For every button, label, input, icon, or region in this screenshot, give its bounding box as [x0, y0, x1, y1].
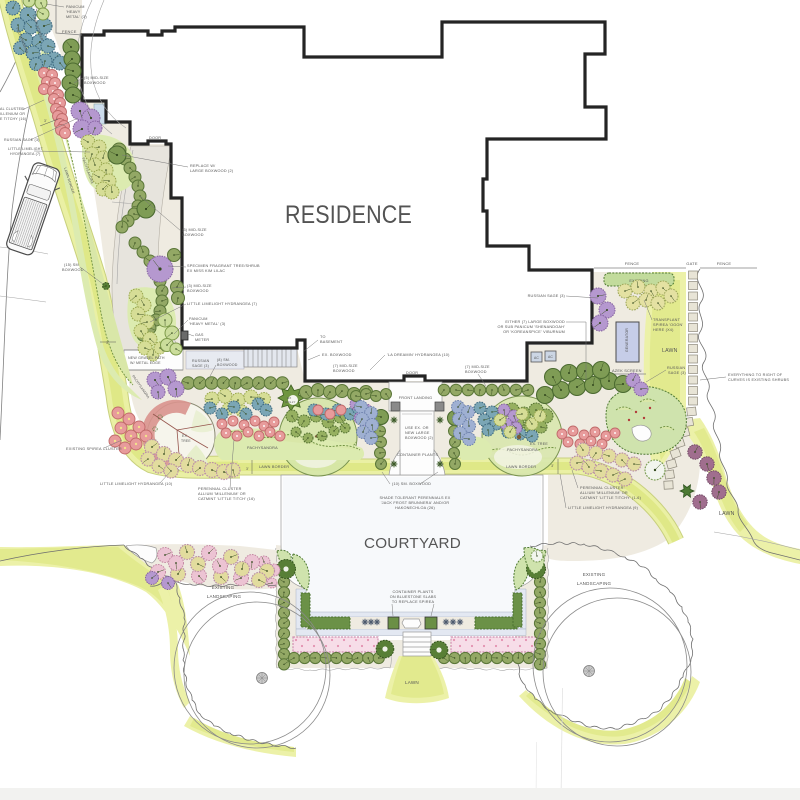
svg-text:LITTLE LIMELIGHT HYDRANGEA (7): LITTLE LIMELIGHT HYDRANGEA (7): [187, 302, 258, 306]
svg-text:BOXWOOD: BOXWOOD: [62, 268, 84, 272]
svg-text:ILLENIUM OR: ILLENIUM OR: [0, 112, 25, 116]
svg-text:LANDSCAPING: LANDSCAPING: [207, 594, 242, 599]
svg-text:'HEAVY METAL' (3): 'HEAVY METAL' (3): [189, 322, 226, 326]
svg-text:'HEAVY: 'HEAVY: [66, 10, 81, 14]
svg-text:(3) MID-SIZE: (3) MID-SIZE: [187, 284, 212, 288]
svg-text:EVERYTHING TO RIGHT OF: EVERYTHING TO RIGHT OF: [728, 373, 783, 377]
svg-text:EX MISS KIM LILAC: EX MISS KIM LILAC: [187, 269, 225, 273]
svg-text:CONTAINER PLANTS: CONTAINER PLANTS: [392, 590, 433, 594]
svg-text:TO REPLACE SPIREA: TO REPLACE SPIREA: [392, 600, 435, 604]
svg-text:AC: AC: [548, 355, 553, 359]
svg-text:(3) MID-SIZE: (3) MID-SIZE: [182, 228, 207, 232]
svg-text:PERENNIAL CLUSTER:: PERENNIAL CLUSTER:: [580, 486, 625, 490]
svg-text:PACHYSANDRA: PACHYSANDRA: [247, 446, 278, 450]
svg-text:RUSSIAN SAGE (3): RUSSIAN SAGE (3): [4, 138, 40, 142]
svg-text:SAGE (3): SAGE (3): [668, 371, 686, 375]
svg-text:OR SUB PANICUM 'SHENANDOAH': OR SUB PANICUM 'SHENANDOAH': [497, 325, 565, 329]
svg-text:ALLIUM 'MILLENIUM' OR: ALLIUM 'MILLENIUM' OR: [580, 491, 628, 495]
svg-text:EX. TREE: EX. TREE: [530, 442, 548, 446]
svg-text:RUSSIAN: RUSSIAN: [667, 366, 685, 370]
svg-text:HAKONECHLOA (26): HAKONECHLOA (26): [395, 506, 435, 510]
svg-text:FENCE: FENCE: [62, 29, 77, 34]
svg-text:SPIREA 'OGON': SPIREA 'OGON': [653, 323, 683, 327]
svg-text:EXISTING: EXISTING: [212, 585, 235, 590]
svg-text:DOOR: DOOR: [406, 371, 418, 375]
svg-text:EX: EX: [182, 434, 187, 438]
svg-text:FRONT LANDING: FRONT LANDING: [399, 396, 433, 400]
svg-text:ALLIUM 'MILLENIUM' OR: ALLIUM 'MILLENIUM' OR: [198, 492, 246, 496]
svg-text:LANDSCAPING: LANDSCAPING: [577, 581, 612, 586]
svg-text:HYDRANGEA (7): HYDRANGEA (7): [10, 152, 41, 156]
svg-text:PERENNIAL CLUSTER: PERENNIAL CLUSTER: [198, 487, 242, 491]
svg-text:(15) SM: (15) SM: [64, 263, 79, 267]
svg-text:RUSSIAN SAGE (3): RUSSIAN SAGE (3): [528, 294, 566, 298]
svg-text:BASEMENT: BASEMENT: [320, 340, 343, 344]
svg-text:COURTYARD: COURTYARD: [364, 536, 461, 552]
svg-text:AC: AC: [534, 356, 539, 360]
svg-text:3': 3': [246, 467, 249, 471]
svg-text:TO: TO: [320, 335, 326, 339]
svg-text:NEW LARGE: NEW LARGE: [405, 431, 430, 435]
svg-text:HOLLY: HOLLY: [285, 400, 296, 404]
svg-text:BOXWOOD: BOXWOOD: [465, 370, 487, 374]
svg-text:CURVES IS EXISTING SHRUBS: CURVES IS EXISTING SHRUBS: [728, 378, 789, 382]
svg-text:LAWN: LAWN: [405, 680, 419, 685]
svg-text:NEW GRAVEL PATH: NEW GRAVEL PATH: [128, 356, 165, 360]
svg-text:PANICUM: PANICUM: [66, 5, 85, 9]
svg-text:LAWN BORDER: LAWN BORDER: [259, 465, 289, 469]
svg-text:LAWN: LAWN: [662, 348, 678, 354]
svg-text:(10) SM. BOXWOOD: (10) SM. BOXWOOD: [392, 482, 431, 486]
svg-text:FENCE: FENCE: [717, 261, 732, 266]
svg-text:METER: METER: [195, 338, 209, 342]
svg-text:(8) SM.: (8) SM.: [217, 358, 230, 362]
svg-text:GATE: GATE: [686, 261, 698, 266]
svg-text:BOXWOOD: BOXWOOD: [84, 81, 106, 85]
svg-text:SHADE TOLERANT PERENNIALS EX: SHADE TOLERANT PERENNIALS EX: [379, 496, 450, 500]
svg-text:GENERATOR: GENERATOR: [625, 328, 629, 352]
svg-text:HERE (X4): HERE (X4): [653, 328, 674, 332]
svg-text:(7) MID-SIZE: (7) MID-SIZE: [333, 364, 358, 368]
svg-text:3': 3': [44, 119, 47, 123]
svg-text:CATMINT 'LITTLE TITCHY' (1-6): CATMINT 'LITTLE TITCHY' (1-6): [580, 496, 642, 500]
svg-text:GAS: GAS: [195, 333, 204, 337]
svg-text:BOXWOOD: BOXWOOD: [217, 363, 238, 367]
svg-text:LITTLE LIMELIGHT: LITTLE LIMELIGHT: [8, 147, 44, 151]
svg-text:EITHER (7) LARGE BOXWOOD: EITHER (7) LARGE BOXWOOD: [505, 320, 565, 324]
svg-text:(5) MID-SIZE: (5) MID-SIZE: [84, 76, 109, 80]
svg-text:RUSSIAN: RUSSIAN: [192, 359, 210, 363]
svg-text:CATMINT 'LITTLE TITCH' (16): CATMINT 'LITTLE TITCH' (16): [198, 497, 255, 501]
svg-text:LAWN: LAWN: [719, 511, 735, 517]
svg-text:FENCE: FENCE: [625, 261, 640, 266]
svg-text:RESIDENCE: RESIDENCE: [285, 201, 412, 229]
svg-text:EXISTING SPIREA CLUSTER: EXISTING SPIREA CLUSTER: [66, 447, 122, 451]
svg-text:PANICUM: PANICUM: [189, 317, 208, 321]
svg-text:SPECIMEN FRAGRANT TREE/SHRUB: SPECIMEN FRAGRANT TREE/SHRUB: [187, 264, 260, 268]
svg-text:DOOR: DOOR: [149, 136, 161, 140]
svg-text:BOXWOOD: BOXWOOD: [187, 289, 209, 293]
svg-text:SAGE (3): SAGE (3): [192, 364, 209, 368]
svg-text:'LA DREAMIN' HYDRANGEA (10): 'LA DREAMIN' HYDRANGEA (10): [387, 353, 450, 357]
svg-text:BOXWOOD: BOXWOOD: [333, 369, 355, 373]
svg-text:LITTLE LIMELIGHT HYDRANGEA (10: LITTLE LIMELIGHT HYDRANGEA (10): [100, 482, 173, 486]
svg-text:TREE: TREE: [181, 439, 191, 443]
svg-text:EX. BOXWOOD: EX. BOXWOOD: [322, 353, 352, 357]
svg-text:REPLACE W/: REPLACE W/: [190, 164, 216, 168]
svg-text:(7) MID-SIZE: (7) MID-SIZE: [465, 365, 490, 369]
svg-text:3': 3': [551, 464, 554, 468]
svg-text:LAWN BORDER: LAWN BORDER: [506, 465, 536, 469]
svg-text:LARGE BOXWOOD (2): LARGE BOXWOOD (2): [190, 169, 234, 173]
svg-text:EXISTING: EXISTING: [583, 572, 606, 577]
svg-text:'JACK FROST BRUNNERA' AND/OR: 'JACK FROST BRUNNERA' AND/OR: [381, 501, 450, 505]
svg-text:PACHYSANDRA: PACHYSANDRA: [507, 448, 538, 452]
svg-text:LITTLE LIMELIGHT HYDRANGEA (9): LITTLE LIMELIGHT HYDRANGEA (9): [568, 506, 639, 510]
svg-text:AL CLUSTER:: AL CLUSTER:: [0, 107, 25, 111]
svg-text:TRANSPLANT: TRANSPLANT: [653, 318, 681, 322]
svg-text:USE EX. OR: USE EX. OR: [405, 426, 429, 430]
svg-text:CONTAINER PLANTS: CONTAINER PLANTS: [397, 453, 438, 457]
svg-text:METAL' (3): METAL' (3): [66, 15, 87, 19]
svg-text:BOXWOOD: BOXWOOD: [182, 233, 204, 237]
svg-text:AZEK SCREEN: AZEK SCREEN: [612, 368, 642, 373]
svg-text:3': 3': [106, 341, 109, 345]
svg-text:ON BLUESTONE SLABS: ON BLUESTONE SLABS: [390, 595, 437, 599]
svg-text:OR 'KOREANSPICE' VIBURNUM: OR 'KOREANSPICE' VIBURNUM: [503, 330, 565, 334]
svg-text:W/ METAL EDGE: W/ METAL EDGE: [130, 361, 161, 365]
svg-text:BOXWOOD (2): BOXWOOD (2): [405, 436, 434, 440]
svg-text:E TITCHY (16): E TITCHY (16): [0, 117, 26, 121]
